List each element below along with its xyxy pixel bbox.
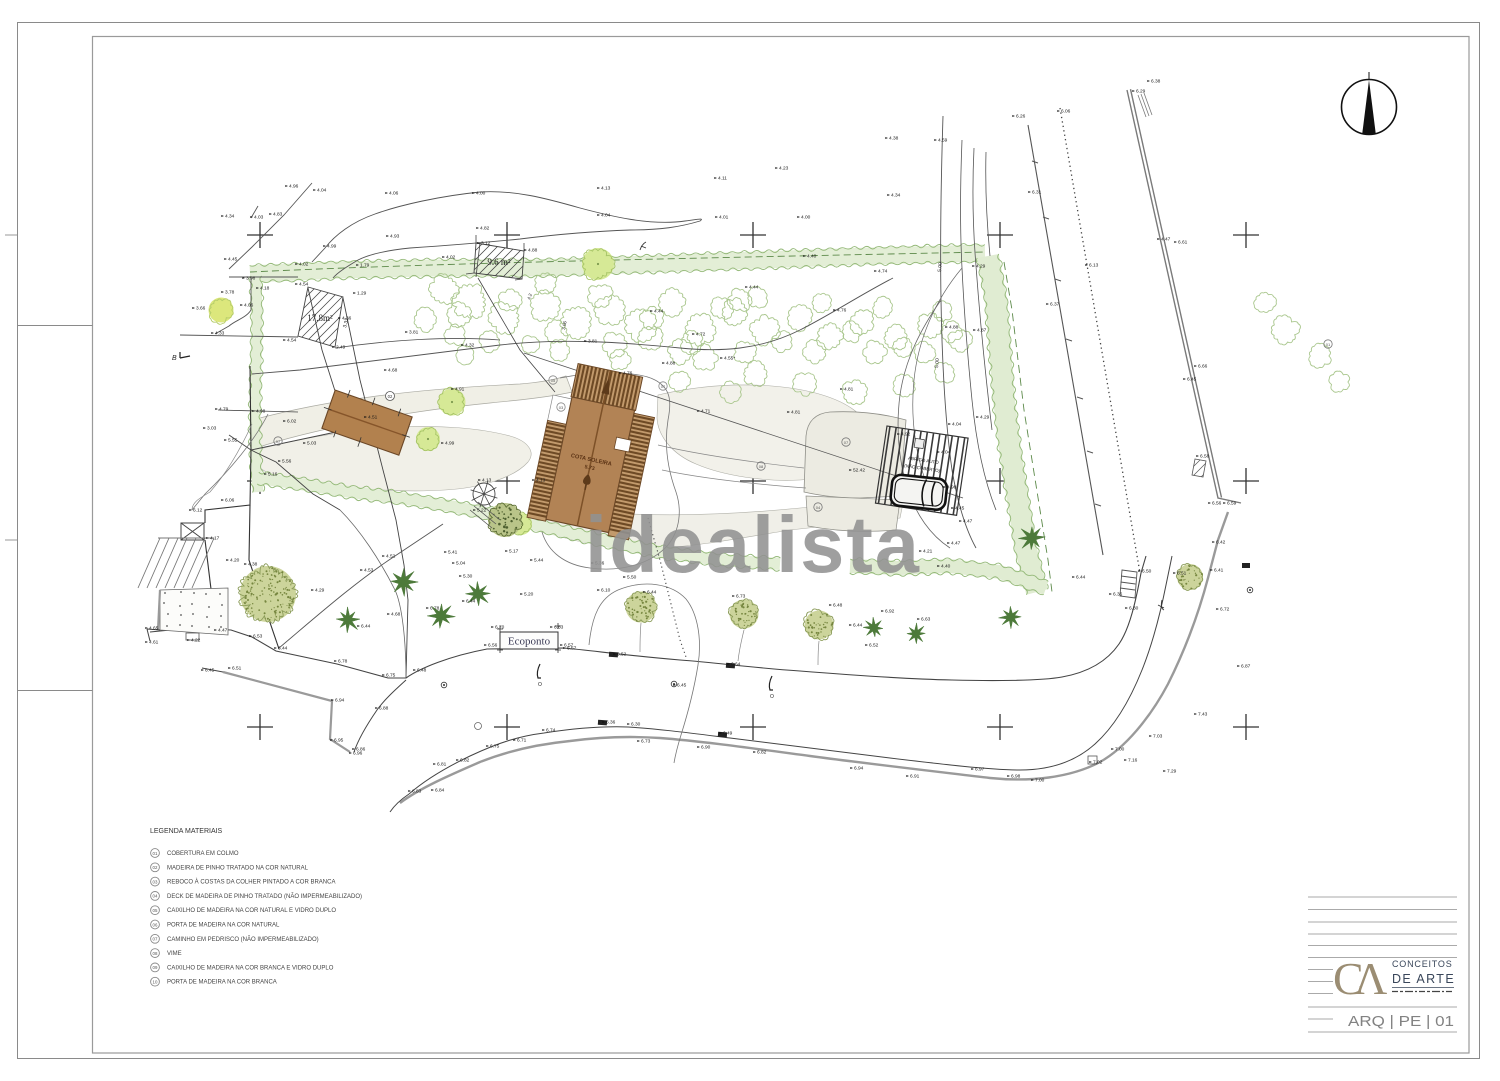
svg-text:4.23: 4.23 <box>779 166 789 172</box>
svg-text:6.84: 6.84 <box>435 788 445 794</box>
svg-text:6.13: 6.13 <box>1089 263 1099 269</box>
svg-text:2.49: 2.49 <box>336 345 346 351</box>
svg-text:4.87: 4.87 <box>977 328 987 334</box>
svg-text:6.06: 6.06 <box>1061 109 1071 115</box>
svg-text:7.43: 7.43 <box>1198 712 1208 718</box>
svg-text:5.44: 5.44 <box>534 558 544 564</box>
svg-text:6.66: 6.66 <box>1198 364 1208 370</box>
svg-text:4.34: 4.34 <box>225 214 235 220</box>
svg-text:6.50: 6.50 <box>1142 569 1152 575</box>
svg-text:6.57: 6.57 <box>567 646 577 652</box>
svg-text:6.06: 6.06 <box>225 498 235 504</box>
svg-text:CONCEITOS: CONCEITOS <box>1392 959 1453 969</box>
svg-text:DE ARTE: DE ARTE <box>1392 972 1455 986</box>
svg-text:6.49: 6.49 <box>723 731 733 737</box>
svg-text:5.16: 5.16 <box>268 472 278 478</box>
svg-text:07: 07 <box>276 439 281 444</box>
svg-text:6.95: 6.95 <box>334 738 344 744</box>
svg-text:07: 07 <box>153 937 158 942</box>
svg-text:10: 10 <box>153 980 158 985</box>
svg-text:3.66: 3.66 <box>196 306 206 312</box>
svg-text:05: 05 <box>153 908 158 913</box>
svg-text:6.59: 6.59 <box>1227 501 1237 507</box>
svg-text:4.47: 4.47 <box>1161 237 1171 243</box>
svg-text:6.44: 6.44 <box>466 599 476 605</box>
svg-text:5.00: 5.00 <box>934 358 941 368</box>
svg-text:6.94: 6.94 <box>335 698 345 704</box>
svg-text:4.44: 4.44 <box>654 309 664 315</box>
svg-text:6.26: 6.26 <box>1016 114 1026 120</box>
svg-text:4.47: 4.47 <box>218 628 228 634</box>
svg-text:6.48: 6.48 <box>417 668 427 674</box>
svg-text:7.16: 7.16 <box>1128 758 1138 764</box>
svg-text:PORTA DE MADEIRA NA COR BRANCA: PORTA DE MADEIRA NA COR BRANCA <box>167 980 277 986</box>
svg-text:6.44: 6.44 <box>647 590 657 596</box>
svg-text:08: 08 <box>153 951 158 956</box>
svg-text:4.82: 4.82 <box>480 226 490 232</box>
svg-text:6.92: 6.92 <box>885 609 895 615</box>
svg-text:4.04: 4.04 <box>601 213 611 219</box>
svg-text:4.52: 4.52 <box>386 554 396 560</box>
svg-text:6.87: 6.87 <box>1241 664 1251 670</box>
svg-text:4.13: 4.13 <box>482 478 492 484</box>
svg-text:5.22: 5.22 <box>477 508 487 514</box>
svg-text:4.03: 4.03 <box>254 215 264 221</box>
svg-text:7.00: 7.00 <box>1035 778 1045 784</box>
svg-text:4.40: 4.40 <box>807 254 817 260</box>
svg-text:4.38: 4.38 <box>248 562 258 568</box>
svg-text:Λ: Λ <box>1354 953 1387 1004</box>
svg-text:6.82: 6.82 <box>757 750 767 756</box>
svg-text:6.78: 6.78 <box>338 659 348 665</box>
svg-text:CAIXILHO DE MADEIRA NA COR NA: CAIXILHO DE MADEIRA NA COR NATURAL E VID… <box>167 908 336 914</box>
svg-text:01: 01 <box>153 851 158 856</box>
svg-text:4.38: 4.38 <box>889 136 899 142</box>
svg-text:DECK DE MADEIRA DE PINHO TRAT: DECK DE MADEIRA DE PINHO TRATADO (NÃO IM… <box>167 893 362 900</box>
svg-text:09: 09 <box>153 965 158 970</box>
svg-text:4.02: 4.02 <box>299 262 309 268</box>
svg-text:4.53: 4.53 <box>364 568 374 574</box>
svg-text:4.92: 4.92 <box>901 432 911 438</box>
svg-text:6.74: 6.74 <box>546 728 556 734</box>
svg-text:4.21: 4.21 <box>923 549 933 555</box>
svg-text:4.34: 4.34 <box>891 193 901 199</box>
svg-text:6.37: 6.37 <box>1050 302 1060 308</box>
svg-text:6.82: 6.82 <box>460 758 470 764</box>
svg-text:6.52: 6.52 <box>617 652 627 658</box>
svg-text:6.51: 6.51 <box>232 666 242 672</box>
svg-text:6.36: 6.36 <box>606 720 616 726</box>
svg-text:4.44: 4.44 <box>749 285 759 291</box>
svg-text:3.12: 3.12 <box>481 241 491 247</box>
svg-text:4.54: 4.54 <box>287 338 297 344</box>
svg-text:4.06: 4.06 <box>244 303 254 309</box>
svg-text:CAMINHO EM PEDRISCO (NÃO IMPER: CAMINHO EM PEDRISCO (NÃO IMPERMEABILIZAD… <box>167 936 319 943</box>
svg-text:6.31: 6.31 <box>1032 190 1042 196</box>
svg-text:4.99: 4.99 <box>327 244 337 250</box>
svg-text:7.02: 7.02 <box>1093 760 1103 766</box>
svg-text:4.32: 4.32 <box>465 343 475 349</box>
svg-text:4.02: 4.02 <box>446 255 456 261</box>
svg-text:7.29: 7.29 <box>1167 769 1177 775</box>
svg-text:6.45: 6.45 <box>205 668 215 674</box>
svg-text:08: 08 <box>759 464 764 469</box>
svg-text:4.59: 4.59 <box>938 138 948 144</box>
svg-text:3.78: 3.78 <box>225 290 235 296</box>
svg-text:REBOCO À COSTAS DA COLHER PIN: REBOCO À COSTAS DA COLHER PINTADO A COR … <box>167 879 335 886</box>
svg-text:6.64: 6.64 <box>731 662 741 668</box>
svg-text:17.8m²: 17.8m² <box>307 313 333 323</box>
svg-text:6.63: 6.63 <box>921 617 931 623</box>
svg-text:6.44: 6.44 <box>278 646 288 652</box>
svg-text:4.76: 4.76 <box>837 308 847 314</box>
svg-text:52.42: 52.42 <box>853 468 865 474</box>
svg-text:6.98: 6.98 <box>1011 774 1021 780</box>
svg-text:4.88: 4.88 <box>528 248 538 254</box>
svg-text:6.56: 6.56 <box>1212 501 1222 507</box>
svg-text:03: 03 <box>153 879 158 884</box>
svg-text:4.61: 4.61 <box>149 640 159 646</box>
svg-text:6.70: 6.70 <box>495 625 505 631</box>
svg-text:6.81: 6.81 <box>437 762 447 768</box>
svg-text:4.47: 4.47 <box>951 541 961 547</box>
svg-text:6.42: 6.42 <box>1216 540 1226 546</box>
svg-text:O: O <box>538 682 542 688</box>
svg-text:4.81: 4.81 <box>791 410 801 416</box>
svg-text:5.55: 5.55 <box>228 438 238 444</box>
svg-text:5.41: 5.41 <box>448 550 458 556</box>
svg-text:6.53: 6.53 <box>253 634 263 640</box>
svg-text:4.81: 4.81 <box>844 387 854 393</box>
svg-text:3.81: 3.81 <box>588 339 598 345</box>
svg-text:9.6 m²: 9.6 m² <box>487 257 511 267</box>
svg-text:4.72: 4.72 <box>696 332 706 338</box>
svg-text:LEGENDA MATERIAIS: LEGENDA MATERIAIS <box>150 828 223 835</box>
svg-text:4.45: 4.45 <box>228 257 238 263</box>
svg-text:05: 05 <box>551 378 556 383</box>
svg-text:4.11: 4.11 <box>718 176 727 182</box>
svg-text:4.96: 4.96 <box>289 184 299 190</box>
svg-text:PORTA DE MADEIRA NA COR NATUR: PORTA DE MADEIRA NA COR NATURAL <box>167 923 280 929</box>
svg-text:4.29: 4.29 <box>976 264 986 270</box>
svg-text:6.75: 6.75 <box>386 673 396 679</box>
svg-text:6.71: 6.71 <box>517 738 527 744</box>
svg-text:4.06: 4.06 <box>389 191 399 197</box>
svg-text:7.03: 7.03 <box>1153 734 1163 740</box>
svg-text:6.44: 6.44 <box>853 623 863 629</box>
svg-text:4.13: 4.13 <box>601 186 611 192</box>
svg-text:6.73: 6.73 <box>641 739 651 745</box>
svg-text:5.56: 5.56 <box>282 459 292 465</box>
svg-text:6.58: 6.58 <box>1200 454 1210 460</box>
svg-text:6.88: 6.88 <box>379 706 389 712</box>
svg-text:VIME: VIME <box>167 951 182 957</box>
svg-text:3.98: 3.98 <box>246 276 256 282</box>
svg-text:MADEIRA DE PINHO TRATADO NA C: MADEIRA DE PINHO TRATADO NA COR NATURAL <box>167 865 309 871</box>
svg-text:3.81: 3.81 <box>409 330 419 336</box>
svg-text:6.30: 6.30 <box>631 722 641 728</box>
svg-text:4.76: 4.76 <box>623 371 633 377</box>
svg-text:4.22: 4.22 <box>191 638 201 644</box>
svg-text:4.88: 4.88 <box>666 361 676 367</box>
svg-text:4.00: 4.00 <box>801 215 811 221</box>
svg-text:07: 07 <box>844 440 849 445</box>
svg-text:3.03: 3.03 <box>207 426 217 432</box>
svg-text:6.02: 6.02 <box>287 419 297 425</box>
svg-text:4.04: 4.04 <box>941 450 951 456</box>
svg-text:4.83: 4.83 <box>273 212 283 218</box>
svg-text:6.48: 6.48 <box>833 603 843 609</box>
svg-text:1.79: 1.79 <box>360 263 370 269</box>
svg-text:02: 02 <box>153 865 158 870</box>
svg-text:CAIXILHO DE MADEIRA NA COR BR: CAIXILHO DE MADEIRA NA COR BRANCA E VIDR… <box>167 965 334 971</box>
svg-text:6.73: 6.73 <box>736 594 746 600</box>
svg-text:6.45: 6.45 <box>1187 377 1197 383</box>
svg-text:6.41: 6.41 <box>1214 568 1224 574</box>
svg-text:B: B <box>172 355 177 362</box>
svg-text:Ecoponto: Ecoponto <box>508 636 551 648</box>
svg-text:4.29: 4.29 <box>980 415 990 421</box>
svg-text:6.44: 6.44 <box>1076 575 1086 581</box>
svg-text:6.63: 6.63 <box>554 625 564 631</box>
svg-text:4.98: 4.98 <box>947 485 957 491</box>
svg-text:6.44: 6.44 <box>361 624 371 630</box>
svg-text:6.96: 6.96 <box>353 751 363 757</box>
svg-text:4.98: 4.98 <box>256 409 266 415</box>
svg-text:04: 04 <box>153 894 158 899</box>
svg-text:6.72: 6.72 <box>1220 607 1230 613</box>
svg-text:4.17: 4.17 <box>210 536 220 542</box>
svg-text:1.29: 1.29 <box>357 291 367 297</box>
svg-text:4.68: 4.68 <box>388 368 398 374</box>
svg-text:5.00: 5.00 <box>937 262 944 272</box>
svg-text:6.94: 6.94 <box>854 766 864 772</box>
svg-text:6.90: 6.90 <box>701 745 711 751</box>
svg-text:01: 01 <box>1326 342 1331 347</box>
svg-text:4.33: 4.33 <box>215 331 225 337</box>
svg-text:4.74: 4.74 <box>878 269 888 275</box>
svg-text:6.52: 6.52 <box>869 643 879 649</box>
svg-text:6.29: 6.29 <box>1136 89 1146 95</box>
svg-text:4.65: 4.65 <box>149 626 159 632</box>
svg-text:4.54: 4.54 <box>299 282 309 288</box>
svg-text:4.29: 4.29 <box>315 588 325 594</box>
svg-text:6.56: 6.56 <box>488 643 498 649</box>
svg-text:4.20: 4.20 <box>230 558 240 564</box>
svg-text:4.45: 4.45 <box>955 506 965 512</box>
svg-text:4.40: 4.40 <box>941 564 951 570</box>
svg-text:4.93: 4.93 <box>390 234 400 240</box>
svg-text:ARQ | PE | 01: ARQ | PE | 01 <box>1348 1014 1454 1030</box>
svg-text:4.51: 4.51 <box>368 415 378 421</box>
svg-text:6.38: 6.38 <box>1151 79 1161 85</box>
svg-text:4.91: 4.91 <box>455 387 465 393</box>
svg-text:idealista: idealista <box>585 500 921 589</box>
svg-text:6.36: 6.36 <box>1113 592 1123 598</box>
svg-text:6.83: 6.83 <box>412 789 422 795</box>
svg-text:5.17: 5.17 <box>509 549 519 555</box>
svg-text:4.04: 4.04 <box>952 422 962 428</box>
svg-text:4.55*: 4.55* <box>724 356 735 362</box>
svg-text:02: 02 <box>388 394 393 399</box>
svg-text:4.79: 4.79 <box>219 407 229 413</box>
svg-text:5.03: 5.03 <box>307 441 317 447</box>
svg-text:O: O <box>770 694 774 700</box>
svg-text:6.61: 6.61 <box>1178 240 1188 246</box>
svg-text:06: 06 <box>153 922 158 927</box>
svg-text:4.68: 4.68 <box>391 612 401 618</box>
svg-text:03: 03 <box>559 405 564 410</box>
svg-text:6.78: 6.78 <box>430 606 440 612</box>
svg-text:4.04: 4.04 <box>317 188 327 194</box>
svg-text:5.20: 5.20 <box>524 592 534 598</box>
svg-text:6.30: 6.30 <box>1129 606 1139 612</box>
svg-text:4.47: 4.47 <box>963 519 973 525</box>
svg-text:6.91: 6.91 <box>910 774 920 780</box>
svg-text:4.99: 4.99 <box>445 441 455 447</box>
svg-text:4.88: 4.88 <box>949 325 959 331</box>
svg-text:4.71: 4.71 <box>701 409 711 415</box>
svg-text:5.30: 5.30 <box>463 574 473 580</box>
svg-text:7.00: 7.00 <box>1115 747 1125 753</box>
svg-text:6.12: 6.12 <box>193 508 203 514</box>
svg-text:4.00: 4.00 <box>476 191 486 197</box>
svg-text:4.18: 4.18 <box>260 286 270 292</box>
svg-text:4.13: 4.13 <box>536 478 546 484</box>
svg-text:6.97: 6.97 <box>975 767 985 773</box>
svg-text:COBERTURA EM COLMO: COBERTURA EM COLMO <box>167 851 239 857</box>
svg-text:6.51: 6.51 <box>1177 571 1187 577</box>
svg-text:6.75: 6.75 <box>490 744 500 750</box>
svg-text:6.45: 6.45 <box>677 683 687 689</box>
svg-text:07: 07 <box>661 384 666 389</box>
svg-text:4.01: 4.01 <box>719 215 729 221</box>
svg-text:5.04: 5.04 <box>456 561 466 567</box>
